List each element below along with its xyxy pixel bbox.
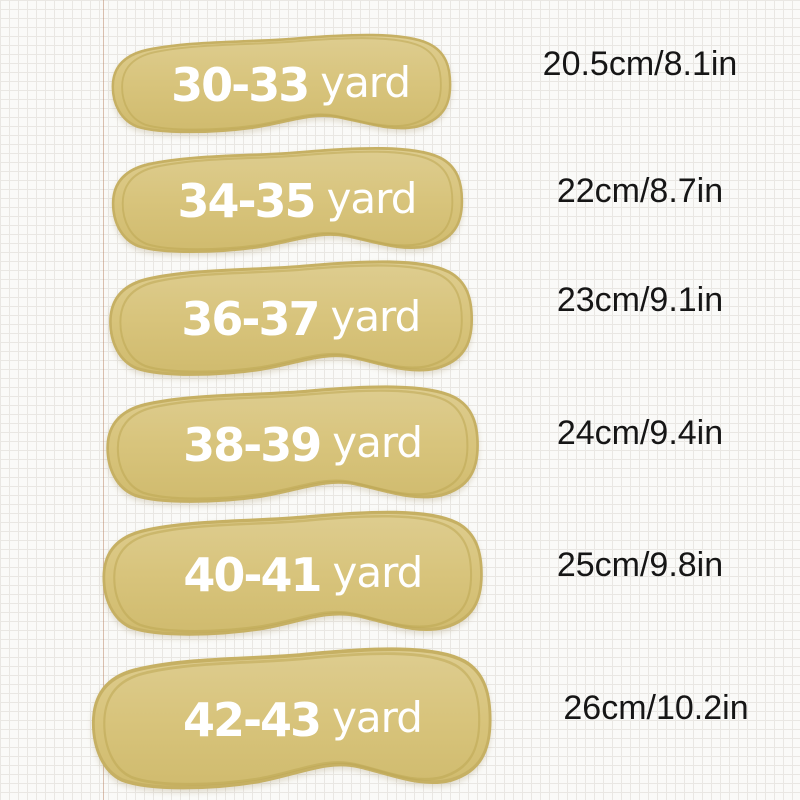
length-label-30-33: 20.5cm/8.1in <box>500 47 780 81</box>
size-unit: yard <box>320 58 410 107</box>
length-label-40-41: 25cm/9.8in <box>500 548 780 582</box>
size-chart-image: 30-33 yard 20.5cm/8.1in 34-35 yard 22cm/… <box>0 0 800 800</box>
size-range: 36-37 <box>181 292 318 346</box>
size-label: 40-41 yard <box>183 548 422 602</box>
size-range: 34-35 <box>177 174 314 228</box>
length-label-36-37: 23cm/9.1in <box>500 283 780 317</box>
insole-42-43: 42-43 yard <box>83 642 497 792</box>
size-unit: yard <box>327 174 417 223</box>
size-label: 36-37 yard <box>181 292 420 346</box>
length-label-38-39: 24cm/9.4in <box>500 416 780 450</box>
size-label: 38-39 yard <box>183 418 422 472</box>
insole-34-35: 34-35 yard <box>104 143 468 255</box>
size-label: 34-35 yard <box>177 174 416 228</box>
size-range: 42-43 <box>183 693 320 747</box>
length-label-34-35: 22cm/8.7in <box>500 174 780 208</box>
insole-36-37: 36-37 yard <box>101 256 478 378</box>
size-unit: yard <box>332 693 422 742</box>
size-range: 40-41 <box>183 548 320 602</box>
size-label: 42-43 yard <box>183 693 422 747</box>
insole-38-39: 38-39 yard <box>98 381 484 505</box>
size-range: 30-33 <box>171 58 308 112</box>
size-unit: yard <box>332 548 422 597</box>
size-unit: yard <box>332 418 422 467</box>
size-label: 30-33 yard <box>171 58 410 112</box>
size-unit: yard <box>330 292 420 341</box>
size-range: 38-39 <box>183 418 320 472</box>
length-label-42-43: 26cm/10.2in <box>516 691 796 725</box>
insole-30-33: 30-33 yard <box>104 30 456 135</box>
insole-40-41: 40-41 yard <box>94 506 488 638</box>
